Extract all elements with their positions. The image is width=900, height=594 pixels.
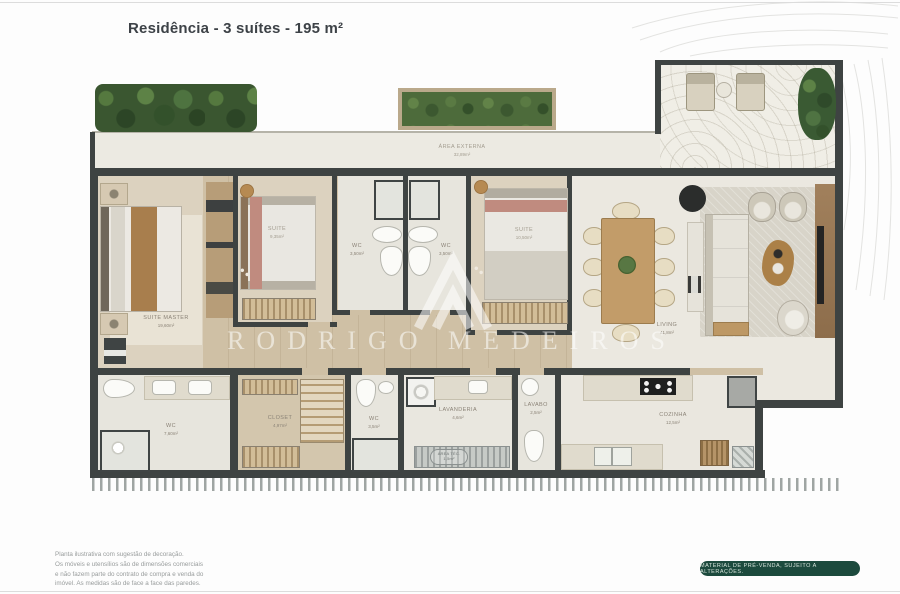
hedge-plants xyxy=(95,84,257,132)
terrace-lounge-chair xyxy=(686,73,715,111)
room-label-wc-master: WC 7,60m² xyxy=(164,423,178,437)
laundry-sink xyxy=(468,380,488,394)
page-title: Residência - 3 suítes - 195 m² xyxy=(128,20,343,37)
nightstand xyxy=(100,313,128,335)
door-opening xyxy=(350,310,370,315)
wall xyxy=(345,375,351,470)
planter-box xyxy=(398,88,556,130)
room-label-suite-master: SUITE MASTER 19,60m² xyxy=(143,315,188,329)
terrace-lounge-chair xyxy=(736,73,765,111)
room-label-closet: CLOSET 4,97m² xyxy=(268,415,292,429)
shower-stall xyxy=(374,180,405,220)
shower-stall xyxy=(409,180,440,220)
room-label-area-externa: ÁREA EXTERNA 32,89m² xyxy=(439,144,486,158)
wardrobe-suite-master xyxy=(206,182,233,318)
closet-shelving xyxy=(300,379,344,443)
wall xyxy=(90,132,95,168)
wood-doormat xyxy=(700,440,729,466)
page-bottom-border xyxy=(0,591,900,592)
wall xyxy=(90,470,765,478)
side-stool xyxy=(240,184,254,198)
terrace-wall xyxy=(655,60,841,65)
bed-suite-master xyxy=(100,206,182,312)
vanity-sink xyxy=(152,380,176,395)
dining-chair xyxy=(653,258,675,276)
room-label-lavabo: LAVABO 2,5m² xyxy=(524,402,548,416)
tv-unit-suite-master xyxy=(104,338,126,364)
round-black-table xyxy=(679,185,706,212)
room-label-suite-2: SUITE 9,35m² xyxy=(268,226,286,240)
closet-wardrobe xyxy=(242,379,298,395)
sofa-bench xyxy=(713,322,749,336)
room-label-lavanderia: LAVANDERIA 4,6m² xyxy=(439,407,477,421)
dining-chair xyxy=(653,227,675,245)
side-stool xyxy=(474,180,488,194)
sofa xyxy=(705,214,749,336)
bathroom-sink xyxy=(372,226,402,243)
armchair xyxy=(779,192,807,222)
door-opening xyxy=(302,368,328,375)
presale-badge: MATERIAL DE PRÉ-VENDA, SUJEITO A ALTERAÇ… xyxy=(700,561,860,576)
closet-wardrobe xyxy=(242,446,300,468)
washing-machine xyxy=(406,377,436,407)
bathroom-sink xyxy=(408,226,438,243)
room-label-suite-3: SUITE 10,50m² xyxy=(515,227,533,241)
wall xyxy=(98,368,238,375)
wall xyxy=(755,400,763,478)
lounge-pouf xyxy=(777,300,809,336)
armchair xyxy=(748,192,776,222)
terrace-wall xyxy=(655,60,661,134)
room-label-wc-servico: WC 3,5m² xyxy=(368,416,380,430)
door-opening xyxy=(520,368,544,375)
wall xyxy=(90,168,843,176)
wall xyxy=(90,168,98,478)
shower-stall xyxy=(352,438,400,472)
tv-screen xyxy=(817,226,824,304)
nightstand xyxy=(100,183,128,205)
room-label-wc-suite-2: WC 3,50m² xyxy=(350,243,364,257)
wall xyxy=(332,176,337,315)
wall xyxy=(763,400,843,408)
wall xyxy=(512,375,518,470)
floorplan-page: Residência - 3 suítes - 195 m² xyxy=(0,0,900,594)
wall xyxy=(230,375,238,470)
page-top-border xyxy=(0,2,900,3)
double-kitchen-sink xyxy=(594,447,632,466)
wall xyxy=(233,176,238,326)
table-centerpiece-plant xyxy=(618,256,636,274)
cooktop xyxy=(640,378,676,395)
side-stool xyxy=(236,264,254,282)
room-label-cozinha: COZINHA 12,5m² xyxy=(659,412,687,426)
watermark-logo xyxy=(408,250,498,336)
fireplace-box xyxy=(688,276,701,293)
wardrobe-suite-2 xyxy=(242,298,316,320)
disclaimer-text: Planta ilustrativa com sugestão de decor… xyxy=(55,550,203,589)
door-opening xyxy=(470,368,496,375)
refrigerator xyxy=(727,376,757,408)
bathroom-sink xyxy=(378,381,394,394)
slab-hatch-band xyxy=(92,478,842,491)
shower-stall xyxy=(100,430,150,472)
console-table xyxy=(687,222,704,312)
room-label-area-tecnica: ÁREA TÉC. 1,5m² xyxy=(430,449,468,465)
kitchen-counter xyxy=(583,375,693,401)
terrace-plant xyxy=(798,68,836,140)
terrace-side-table xyxy=(716,82,732,98)
wall xyxy=(835,60,843,408)
vanity-sink xyxy=(188,380,212,395)
dining-chair xyxy=(653,289,675,307)
door-opening xyxy=(362,368,386,375)
service-hatch xyxy=(732,446,754,468)
watermark-text: RODRIGO MEDEIROS xyxy=(227,326,677,356)
round-basin xyxy=(521,378,539,396)
kitchen-opening xyxy=(690,368,763,375)
